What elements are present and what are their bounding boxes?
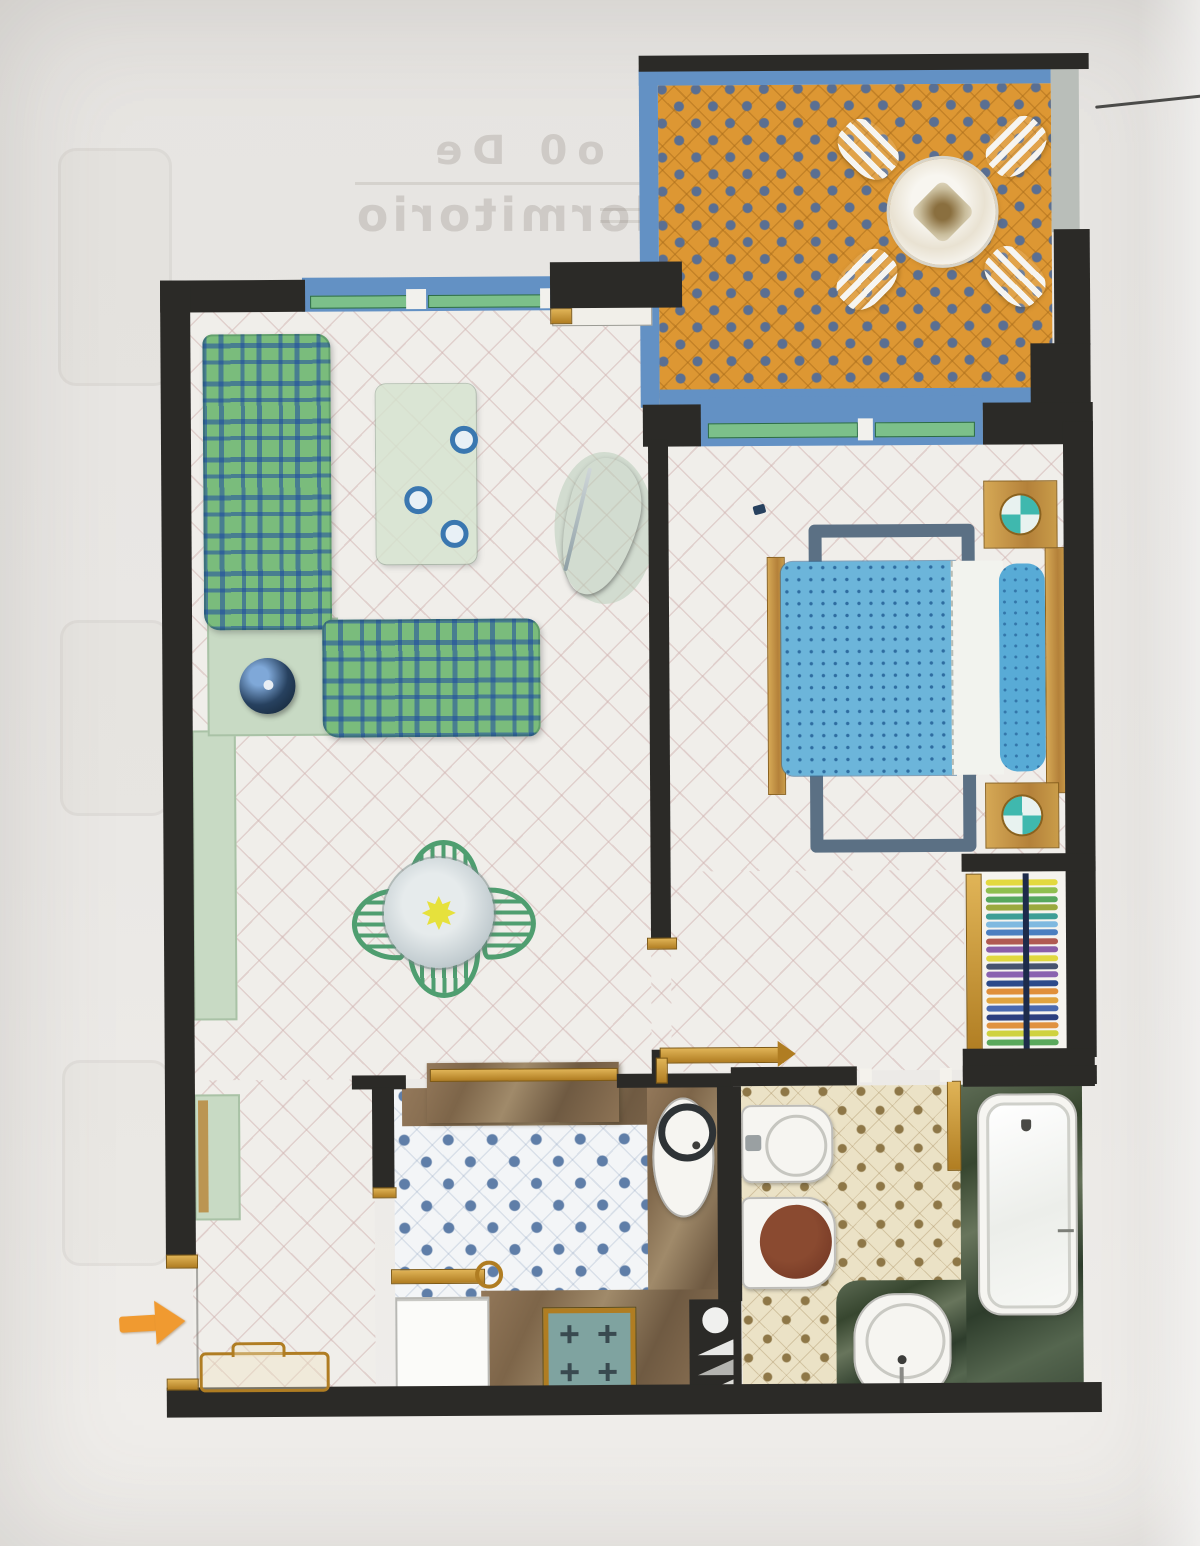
burner-icon xyxy=(598,1325,616,1343)
table-knob xyxy=(440,520,468,548)
basin-bowl xyxy=(865,1303,945,1379)
burner-icon xyxy=(560,1325,578,1343)
lamp-highlight xyxy=(263,680,273,690)
kitchen-bar-trim xyxy=(430,1068,618,1082)
wall-bathroom-top-left xyxy=(731,1066,857,1086)
arrow-head xyxy=(154,1299,187,1345)
shaft-triangle-icon xyxy=(698,1359,734,1375)
wall-outer-right xyxy=(1063,421,1097,1057)
bathroom-door-jamb xyxy=(940,1068,952,1082)
kitchen-door-leaf xyxy=(391,1269,485,1285)
sink-faucet xyxy=(692,1141,700,1149)
toilet xyxy=(742,1197,837,1290)
window-mullion xyxy=(540,288,550,308)
wall-end-cap xyxy=(373,1187,397,1198)
terrace-edge-left xyxy=(639,70,660,408)
bidet xyxy=(741,1105,833,1184)
sphere-lamp xyxy=(239,658,295,714)
wall-end-cap xyxy=(167,1378,199,1390)
coffee-table xyxy=(376,384,477,565)
living-room-window xyxy=(302,276,552,312)
dining-table xyxy=(384,858,495,969)
wall-wardrobe-top xyxy=(962,853,1096,872)
sideboard xyxy=(192,730,238,1020)
bed-sheet-fold xyxy=(951,561,1004,775)
nightstand-bottom xyxy=(985,782,1059,848)
wall-terrace-top xyxy=(639,53,1089,72)
table-knob xyxy=(404,486,432,514)
sun-centerpiece xyxy=(422,896,456,930)
nightstand-lamp xyxy=(1001,495,1039,533)
bathroom-door-leaf xyxy=(660,1047,784,1064)
bathtub-inner xyxy=(986,1102,1071,1309)
arrow-shaft xyxy=(119,1315,158,1333)
terrace-door-hinge xyxy=(550,308,572,324)
wall-terrace-right xyxy=(1054,229,1091,345)
terrace-rail-gray xyxy=(1051,57,1080,232)
console-detail xyxy=(231,1342,285,1357)
wardrobe-jamb xyxy=(966,874,983,1056)
corridor-floor xyxy=(669,870,965,1072)
bathtub-handle xyxy=(1058,1229,1074,1232)
towel-rail xyxy=(947,1081,962,1171)
bed-pillow xyxy=(999,563,1046,771)
door-hinge xyxy=(656,1058,668,1084)
nightstand-top xyxy=(983,480,1057,548)
bed-mattress xyxy=(781,561,956,776)
wall-end-cap xyxy=(166,1254,198,1268)
shaft-triangle-icon xyxy=(697,1339,733,1355)
table-knob xyxy=(450,426,478,454)
toilet-lid xyxy=(760,1205,832,1279)
wall-kitchen-bath-divider xyxy=(717,1086,742,1301)
wall-end-cap xyxy=(647,938,677,950)
bidet-bowl xyxy=(765,1115,827,1177)
plaid-sofa-horizontal xyxy=(322,618,541,737)
refrigerator xyxy=(395,1297,490,1396)
kitchen-door-handle xyxy=(475,1261,503,1289)
cabinet-trim xyxy=(198,1100,209,1212)
wall-livingroom-top-right xyxy=(550,261,682,308)
terrace-round-table xyxy=(889,159,996,266)
shoe-cabinet xyxy=(194,1094,241,1220)
window-sill xyxy=(310,295,408,309)
window-sill xyxy=(428,294,542,308)
wardrobe-rail xyxy=(1023,873,1030,1051)
burner-icon xyxy=(561,1363,579,1381)
wall-kitchen-left xyxy=(372,1087,395,1189)
entry-arrow-icon xyxy=(118,1295,193,1351)
sink-pot xyxy=(658,1103,716,1161)
floor-plan xyxy=(0,0,1200,1550)
console-table xyxy=(200,1352,330,1393)
bathtub xyxy=(977,1093,1078,1316)
shaft-circle-icon xyxy=(702,1307,728,1333)
wall-bathroom-top-right xyxy=(963,1065,1097,1085)
burner-icon xyxy=(599,1363,617,1381)
window-mullion xyxy=(406,289,426,309)
bidet-tap xyxy=(745,1135,761,1151)
window-sill xyxy=(875,422,975,438)
bathroom-door-jamb xyxy=(860,1068,872,1082)
wall-kitchen-top xyxy=(617,1073,733,1088)
wall-terrace-right-jog xyxy=(1030,343,1090,407)
wall-outer-left xyxy=(160,280,196,1266)
window-mullion xyxy=(858,418,873,440)
plaid-sofa-vertical xyxy=(202,334,332,631)
bedroom-terrace-window xyxy=(698,396,983,447)
bathtub-drain xyxy=(1021,1119,1031,1131)
wall-divider-living-bedroom xyxy=(648,440,671,945)
door-leaf-tip xyxy=(778,1041,796,1067)
scanned-page: o0 De dormitorio xyxy=(0,0,1200,1546)
window-sill xyxy=(708,422,858,438)
basin-faucet xyxy=(898,1355,907,1364)
nightstand-lamp xyxy=(1003,796,1041,834)
kitchen-sink xyxy=(652,1097,715,1217)
table-center-detail xyxy=(910,179,975,244)
